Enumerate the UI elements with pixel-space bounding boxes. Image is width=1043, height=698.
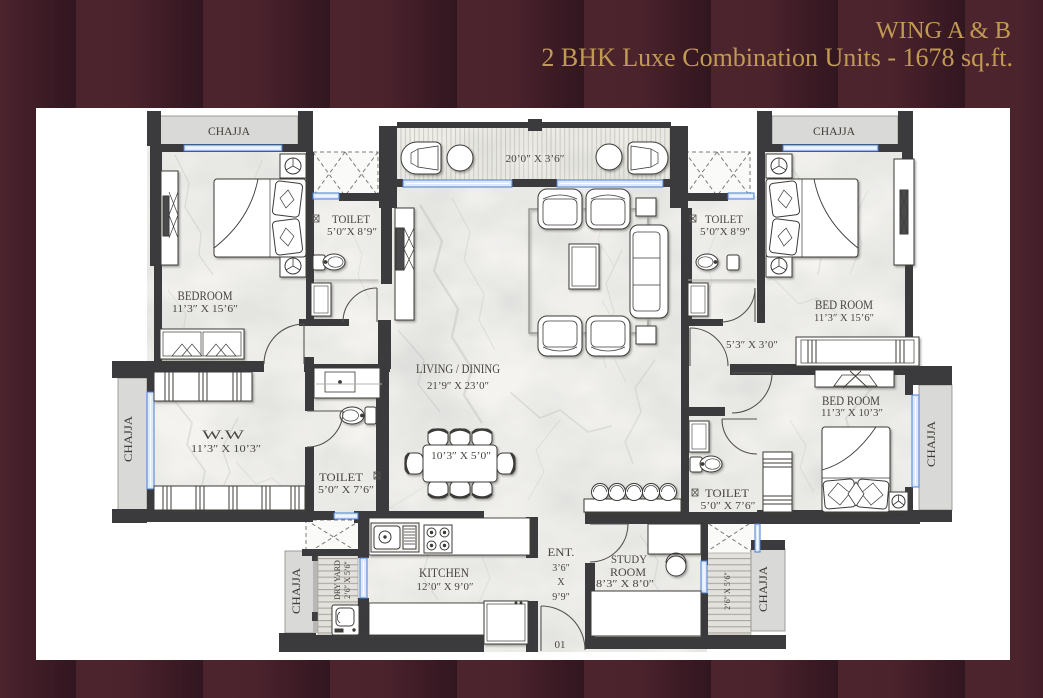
svg-text:20’0″ X 3’6″: 20’0″ X 3’6″ xyxy=(506,153,565,165)
svg-text:ROOM: ROOM xyxy=(610,565,646,579)
svg-text:5’0″ X 7’6″: 5’0″ X 7’6″ xyxy=(701,500,756,512)
svg-text:STUDY: STUDY xyxy=(611,552,647,566)
svg-text:11’3″ X 10’3″: 11’3″ X 10’3″ xyxy=(191,443,261,455)
svg-text:2 BHK Luxe Combination Units: 2 BHK Luxe Combination Units - 1678 sq.f… xyxy=(541,43,1013,72)
svg-text:BED ROOM: BED ROOM xyxy=(815,298,873,312)
svg-text:W.W: W.W xyxy=(202,428,244,442)
svg-text:01: 01 xyxy=(555,639,566,651)
svg-text:21’9″ X 23’0″: 21’9″ X 23’0″ xyxy=(427,380,489,392)
svg-text:CHAJJA: CHAJJA xyxy=(291,567,303,614)
svg-text:8’3″ X 8’0″: 8’3″ X 8’0″ xyxy=(596,578,654,590)
svg-text:10’3″ X 5’0″: 10’3″ X 5’0″ xyxy=(431,451,491,462)
svg-text:11’3″ X 15’6″: 11’3″ X 15’6″ xyxy=(814,312,874,324)
svg-text:5’0″X 8’9″: 5’0″X 8’9″ xyxy=(327,226,377,238)
svg-text:12’0″ X 9’0″: 12’0″ X 9’0″ xyxy=(417,581,474,593)
svg-text:TOILET: TOILET xyxy=(705,212,744,226)
svg-text:9’9″: 9’9″ xyxy=(552,592,570,603)
svg-text:CHAJJA: CHAJJA xyxy=(208,126,251,138)
svg-text:11’3″ X 15’6″: 11’3″ X 15’6″ xyxy=(172,303,238,315)
svg-text:2’6″ X 5’6″: 2’6″ X 5’6″ xyxy=(723,572,732,610)
svg-text:CHAJJA: CHAJJA xyxy=(121,416,135,462)
svg-text:TOILET: TOILET xyxy=(705,486,750,500)
svg-text:CHAJJA: CHAJJA xyxy=(924,421,938,467)
svg-text:BEDROOM: BEDROOM xyxy=(178,289,233,303)
svg-text:TOILET: TOILET xyxy=(319,470,364,484)
svg-text:5’3″ X 3’0″: 5’3″ X 3’0″ xyxy=(726,339,778,351)
svg-text:KITCHEN: KITCHEN xyxy=(419,566,469,580)
svg-text:5’0″ X 7’6″: 5’0″ X 7’6″ xyxy=(318,484,374,496)
svg-text:ENT.: ENT. xyxy=(548,547,575,559)
svg-text:BED ROOM: BED ROOM xyxy=(822,394,880,408)
svg-text:WING A & B: WING A & B xyxy=(876,17,1011,44)
svg-text:TOILET: TOILET xyxy=(332,212,371,226)
svg-text:2’6″ X 5’6″: 2’6″ X 5’6″ xyxy=(343,561,352,599)
svg-text:LIVING / DINING: LIVING / DINING xyxy=(416,362,500,376)
svg-text:5’0″X 8’9″: 5’0″X 8’9″ xyxy=(700,226,750,238)
svg-text:X: X xyxy=(557,577,565,588)
svg-text:11’3″ X 10’3″: 11’3″ X 10’3″ xyxy=(821,407,883,419)
svg-text:CHAJJA: CHAJJA xyxy=(813,126,856,138)
svg-text:3’6″: 3’6″ xyxy=(552,563,570,574)
svg-text:DRY YARD: DRY YARD xyxy=(333,560,342,600)
svg-text:CHAJJA: CHAJJA xyxy=(758,565,770,612)
